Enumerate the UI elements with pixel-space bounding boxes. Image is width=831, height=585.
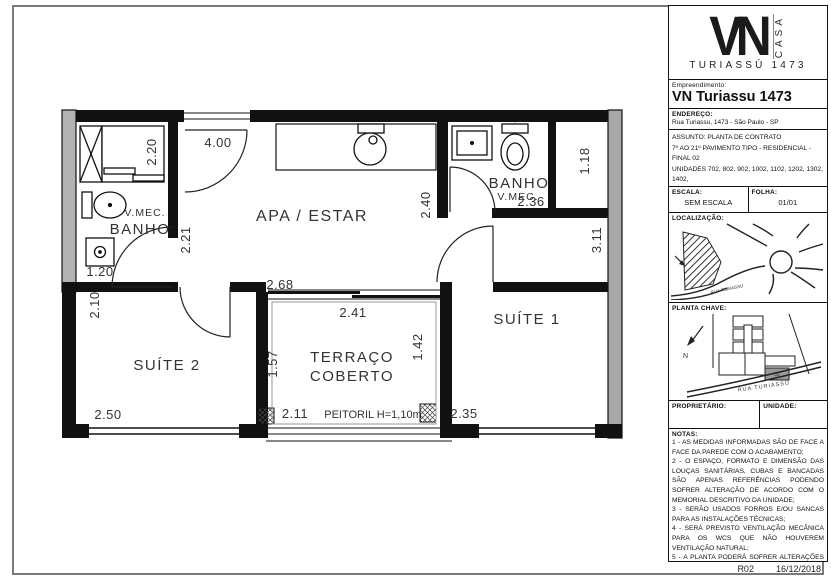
dim-2.36: 2.36 — [517, 194, 544, 209]
room-label-suite-1: SUÍTE 1 — [493, 311, 560, 328]
field-empreendimento: Empreendimento: VN Turiassu 1473 — [669, 80, 827, 109]
assunto-line: UNIDADES 702, 802, 902, 1002, 1102, 1202… — [669, 165, 827, 186]
room-label-terraco: TERRAÇO — [310, 349, 394, 366]
escala-value: SEM ESCALA — [669, 196, 748, 207]
peitoril-note: PEITORIL H=1,10m — [324, 409, 422, 421]
revision-date: 16/12/2018 — [776, 564, 821, 574]
field-proprietario: PROPRIETÁRIO: — [669, 401, 759, 428]
sliding-door — [268, 290, 440, 299]
planta-chave-map: 02 N RUA TURIASSU — [669, 312, 827, 398]
room-label-vmec-left: V.MEC. — [124, 207, 165, 219]
field-proprietario-unidade: PROPRIETÁRIO: UNIDADE: — [669, 401, 827, 429]
field-folha: FOLHA: 01/01 — [748, 187, 828, 212]
field-escala-folha: ESCALA: SEM ESCALA FOLHA: 01/01 — [669, 187, 827, 213]
localizacao-label: LOCALIZAÇÃO: — [669, 213, 827, 222]
dim-2.10: 2.10 — [87, 291, 102, 318]
dim-1.18: 1.18 — [577, 147, 592, 174]
revision-number: R02 — [737, 564, 754, 574]
escala-label: ESCALA: — [669, 187, 748, 196]
room-label-coberto: COBERTO — [310, 368, 394, 385]
dim-1.57: 1.57 — [265, 350, 280, 377]
dim-2.41: 2.41 — [339, 305, 366, 320]
endereco-label: ENDEREÇO: — [669, 109, 827, 118]
room-label-banho-right: BANHO — [489, 175, 550, 192]
dim-2.11: 2.11 — [282, 406, 308, 421]
room-label-banho-left: BANHO — [110, 221, 171, 238]
localizacao-map: RUA TURIASSU — [669, 222, 827, 300]
dim-3.11: 3.11 — [589, 227, 604, 253]
field-unidade: UNIDADE: — [759, 401, 827, 428]
unidade-label: UNIDADE: — [760, 401, 827, 410]
nota-item: 5 - A PLANTA PODERÁ SOFRER ALTERAÇÕES DE… — [669, 553, 827, 563]
dim-4.00: 4.00 — [204, 135, 231, 150]
folha-value: 01/01 — [749, 196, 828, 207]
field-escala: ESCALA: SEM ESCALA — [669, 187, 748, 212]
field-notas: NOTAS: 1 - AS MEDIDAS INFORMADAS SÃO DE … — [669, 429, 827, 563]
endereco-value: Rua Turiassu, 1473 - São Paulo - SP — [669, 118, 827, 127]
dim-1.20: 1.20 — [86, 264, 113, 279]
proprietario-label: PROPRIETÁRIO: — [669, 401, 759, 410]
logo-casa-vertical: CASA — [773, 14, 787, 59]
field-planta-chave: PLANTA CHAVE: 02 — [669, 303, 827, 401]
dim-2.40: 2.40 — [418, 191, 433, 218]
planta-chave-road-label: RUA TURIASSU — [737, 380, 790, 393]
north-label: N — [683, 353, 688, 360]
notas-label: NOTAS: — [669, 429, 827, 438]
dim-2.50: 2.50 — [94, 407, 121, 422]
nota-item: 3 - SERÃO USADOS FORROS E/OU SANCAS PARA… — [669, 505, 827, 524]
nota-item: 4 - SERÁ PREVISTO VENTILAÇÃO MECÂNICA PA… — [669, 524, 827, 553]
assunto-line: ASSUNTO: PLANTA DE CONTRATO — [669, 133, 827, 144]
assunto-line: 7º AO 21º PAVIMENTO TIPO - RESIDENCIAL -… — [669, 144, 827, 165]
planta-chave-label: PLANTA CHAVE: — [669, 303, 827, 312]
logo-vn-monogram: VN — [709, 11, 772, 62]
nota-item: 1 - AS MEDIDAS INFORMADAS SÃO DE FACE A … — [669, 438, 827, 457]
empreendimento-label: Empreendimento: — [669, 80, 827, 89]
empreendimento-value: VN Turiassu 1473 — [669, 89, 827, 105]
folha-label: FOLHA: — [749, 187, 828, 196]
logo: VN CASA TURIASSÚ 1473 — [669, 6, 827, 80]
north-arrow-icon — [687, 326, 703, 346]
room-label-suite-2: SUÍTE 2 — [133, 357, 200, 374]
dim-2.68: 2.68 — [266, 277, 293, 292]
nota-item: 2 - O ESPAÇO, FORMATO E DIMENSÃO DAS LOU… — [669, 457, 827, 505]
field-assunto: ASSUNTO: PLANTA DE CONTRATO 7º AO 21º PA… — [669, 130, 827, 187]
room-label-apa-estar: APA / ESTAR — [256, 208, 368, 225]
dim-2.35: 2.35 — [450, 406, 477, 421]
title-block: VN CASA TURIASSÚ 1473 Empreendimento: VN… — [668, 5, 828, 562]
field-endereco: ENDEREÇO: Rua Turiassu, 1473 - São Paulo… — [669, 109, 827, 130]
column-hatched — [420, 404, 436, 422]
dim-1.42: 1.42 — [410, 333, 425, 360]
revision-line: R02 16/12/2018 — [737, 564, 821, 574]
dim-2.21: 2.21 — [178, 226, 193, 253]
field-localizacao: LOCALIZAÇÃO: RUA TURIASSU — [669, 213, 827, 303]
dim-2.20: 2.20 — [144, 138, 159, 165]
